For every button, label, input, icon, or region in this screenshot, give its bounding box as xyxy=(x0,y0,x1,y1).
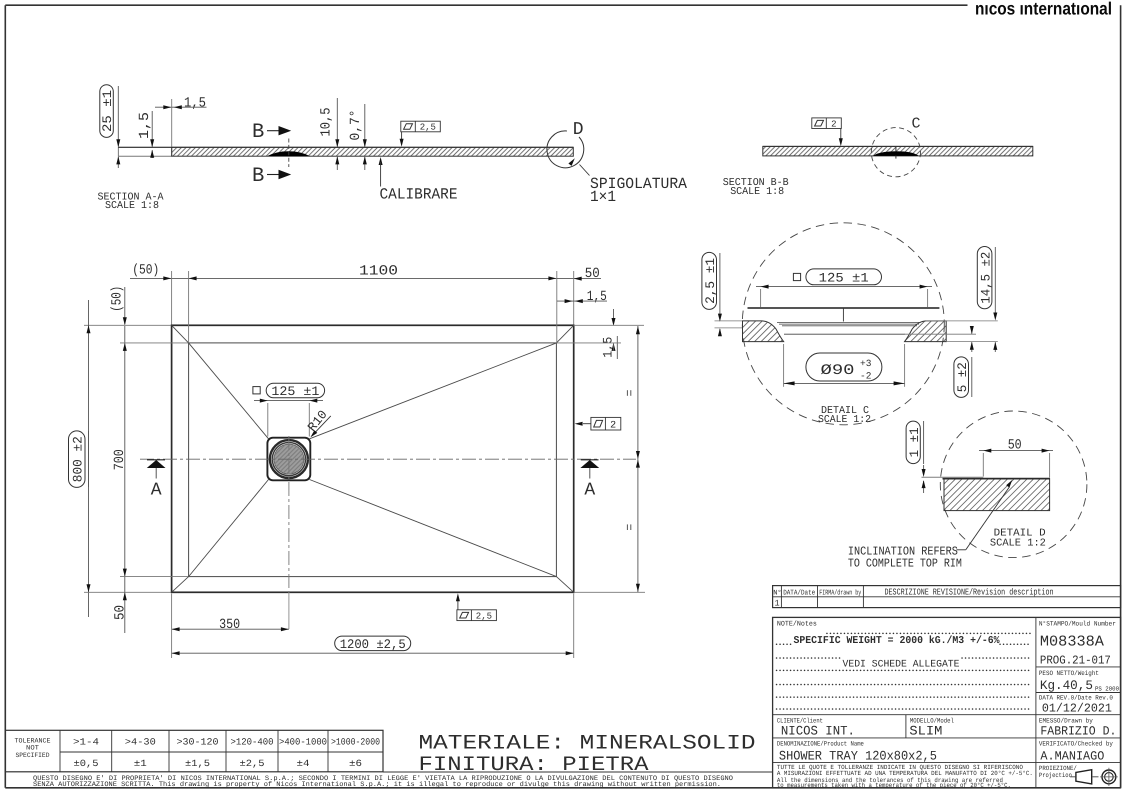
svg-text:>30-120: >30-120 xyxy=(177,736,219,747)
svg-text:±0,5: ±0,5 xyxy=(74,758,99,769)
svg-text:1,5: 1,5 xyxy=(587,289,607,305)
svg-text:VERIFICATO/Checked by: VERIFICATO/Checked by xyxy=(1039,741,1113,748)
svg-text:01/12/2021: 01/12/2021 xyxy=(1042,701,1112,715)
svg-text:+3: +3 xyxy=(860,358,872,369)
svg-text:DATA REV.0/Date Rev.0: DATA REV.0/Date Rev.0 xyxy=(1039,694,1113,701)
svg-text:FIRMA/drawn by: FIRMA/drawn by xyxy=(819,588,861,597)
svg-text:350: 350 xyxy=(219,617,240,633)
svg-text:EMESSO/Drawn by: EMESSO/Drawn by xyxy=(1039,718,1093,725)
svg-text:2,5 ±1: 2,5 ±1 xyxy=(703,258,718,304)
svg-text:-2: -2 xyxy=(860,371,872,382)
svg-text:±1: ±1 xyxy=(134,758,147,769)
svg-text:125 ±1: 125 ±1 xyxy=(819,271,869,286)
svg-text:>1000-2000: >1000-2000 xyxy=(331,736,380,747)
svg-text:>400-1000: >400-1000 xyxy=(279,736,327,747)
svg-text:2: 2 xyxy=(831,119,836,129)
svg-text:(50): (50) xyxy=(132,263,159,279)
svg-text:to measurements taken with a t: to measurements taken with a temperature… xyxy=(777,782,1011,789)
svg-text:1: 1 xyxy=(775,599,780,609)
svg-text:1,5: 1,5 xyxy=(137,112,153,139)
svg-text:50: 50 xyxy=(113,605,129,620)
svg-text:±1,5: ±1,5 xyxy=(185,758,210,769)
svg-text:TO COMPLETE TOP RIM: TO COMPLETE TOP RIM xyxy=(848,557,962,571)
svg-text:800 ±2: 800 ±2 xyxy=(71,436,86,482)
svg-text:CALIBRARE: CALIBRARE xyxy=(380,186,458,204)
svg-text:±4: ±4 xyxy=(297,758,310,769)
svg-text:2,5: 2,5 xyxy=(420,123,436,133)
svg-text:FABRIZIO D.: FABRIZIO D. xyxy=(1040,725,1116,739)
svg-text:SCALE 1:2: SCALE 1:2 xyxy=(990,537,1046,549)
svg-text:1100: 1100 xyxy=(359,263,398,279)
svg-text:FINITURA: PIETRA: FINITURA: PIETRA xyxy=(419,754,650,777)
svg-text:PESO NETTO/Weight: PESO NETTO/Weight xyxy=(1039,670,1099,677)
svg-text:A: A xyxy=(151,481,162,501)
svg-text:5 ±2: 5 ±2 xyxy=(955,362,970,392)
svg-text:N°STAMPO/Mould Number: N°STAMPO/Mould Number xyxy=(1039,620,1116,627)
svg-text:SCALE 1:8: SCALE 1:8 xyxy=(105,200,159,212)
svg-text:SPECIFIC WEIGHT = 2000 kG./M3: SPECIFIC WEIGHT = 2000 kG./M3 +/-6% xyxy=(794,635,1001,647)
svg-text:700: 700 xyxy=(112,449,128,470)
svg-text:SHOWER TRAY 120x80x2,5: SHOWER TRAY 120x80x2,5 xyxy=(779,748,937,763)
svg-text:PROG.21-017: PROG.21-017 xyxy=(1040,653,1111,667)
svg-text:Ø90: Ø90 xyxy=(821,363,855,379)
svg-text:SLIM: SLIM xyxy=(909,724,942,739)
svg-text:nıcos ınternatıonal: nıcos ınternatıonal xyxy=(975,0,1112,19)
svg-text:(50): (50) xyxy=(110,286,126,312)
svg-text:A: A xyxy=(584,481,595,501)
svg-text:A.MANIAGO: A.MANIAGO xyxy=(1040,749,1104,763)
svg-text:SPECIFIED: SPECIFIED xyxy=(16,752,50,759)
svg-text:D: D xyxy=(573,120,584,140)
svg-text:1,5: 1,5 xyxy=(184,96,206,112)
svg-text:C: C xyxy=(912,116,921,133)
svg-text:>120-400: >120-400 xyxy=(231,736,274,747)
svg-text:PROIEZIONE/: PROIEZIONE/ xyxy=(1039,765,1077,772)
svg-text:1 ±1: 1 ±1 xyxy=(907,427,922,457)
svg-text:>4-30: >4-30 xyxy=(125,736,156,747)
svg-text:MATERIALE: MINERALSOLID: MATERIALE: MINERALSOLID xyxy=(419,733,756,756)
svg-text:>1-4: >1-4 xyxy=(73,736,99,747)
svg-text:PS 2000: PS 2000 xyxy=(1095,686,1119,693)
svg-text:DENOMINAZIONE/Product Name: DENOMINAZIONE/Product Name xyxy=(777,741,864,748)
svg-text:1200 ±2,5: 1200 ±2,5 xyxy=(340,637,406,652)
svg-text:B: B xyxy=(252,165,264,188)
svg-text:NOT: NOT xyxy=(26,745,39,752)
svg-text:Kg.40,5: Kg.40,5 xyxy=(1040,678,1093,693)
svg-text:±6: ±6 xyxy=(349,758,362,769)
svg-text:2: 2 xyxy=(610,420,616,431)
svg-text:SENZA AUTORIZZAZIONE SCRITTA.: SENZA AUTORIZZAZIONE SCRITTA. This drawi… xyxy=(33,781,721,789)
svg-text:N°: N° xyxy=(773,589,781,597)
svg-text:125 ±1: 125 ±1 xyxy=(271,384,319,399)
svg-text:25 ±1: 25 ±1 xyxy=(100,90,115,132)
svg-text:DESCRIZIONE REVISIONE/Revision: DESCRIZIONE REVISIONE/Revision descripti… xyxy=(885,588,1054,598)
svg-text:0,7°: 0,7° xyxy=(348,110,364,141)
svg-text:10,5: 10,5 xyxy=(319,108,335,137)
svg-text:TOLERANCE: TOLERANCE xyxy=(15,737,51,744)
svg-text:SCALE 1:2: SCALE 1:2 xyxy=(818,414,871,426)
svg-text:50: 50 xyxy=(585,266,600,282)
svg-text:±2,5: ±2,5 xyxy=(240,758,265,769)
svg-text:NOTE/Notes: NOTE/Notes xyxy=(777,619,817,628)
svg-text:1×1: 1×1 xyxy=(590,188,616,206)
svg-text:SCALE 1:8: SCALE 1:8 xyxy=(730,186,784,198)
svg-text:DATA/Date: DATA/Date xyxy=(783,588,815,597)
svg-text:NICOS INT.: NICOS INT. xyxy=(781,724,855,739)
svg-text:Projection: Projection xyxy=(1039,772,1072,779)
svg-text:14,5 ±2: 14,5 ±2 xyxy=(978,252,993,304)
svg-text:B: B xyxy=(252,121,264,144)
svg-text:A MISURAZIONI EFFETTUATE AD UN: A MISURAZIONI EFFETTUATE AD UNA TEMPERAT… xyxy=(777,770,1033,777)
svg-text:M08338A: M08338A xyxy=(1040,634,1104,651)
svg-text:VEDI SCHEDE ALLEGATE: VEDI SCHEDE ALLEGATE xyxy=(843,659,960,670)
svg-text:2,5: 2,5 xyxy=(476,611,492,621)
